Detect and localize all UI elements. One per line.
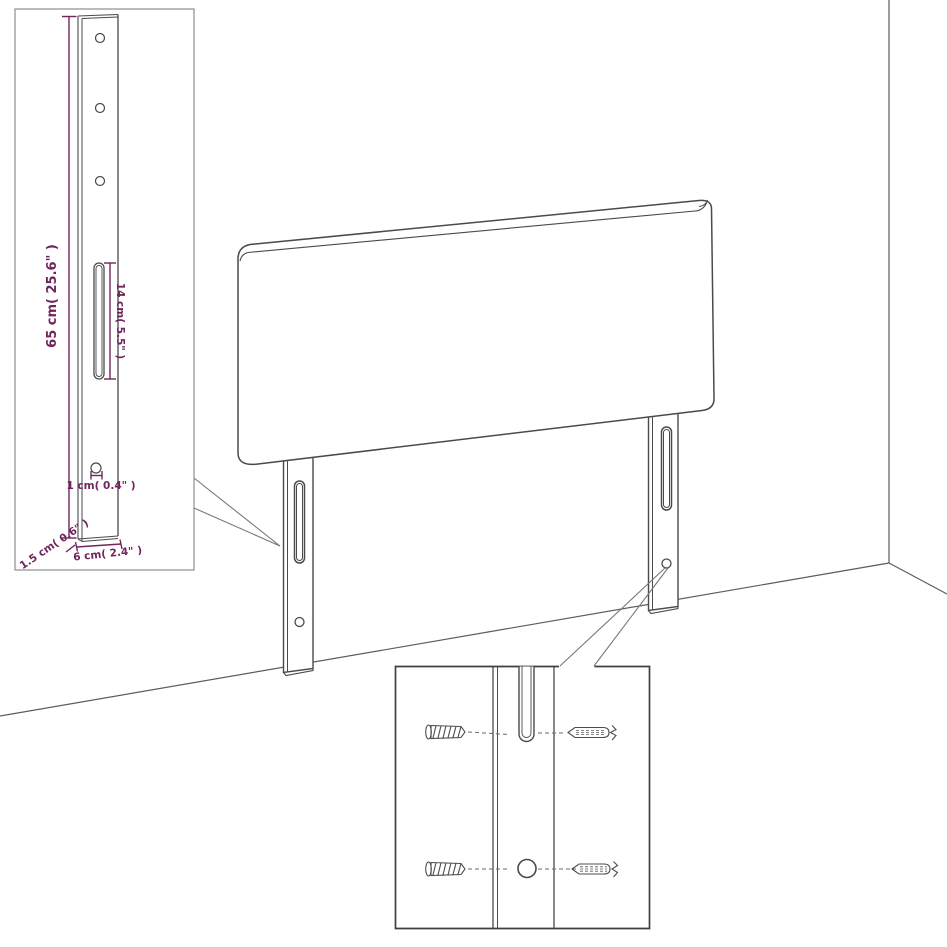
- left-inset-callout: [194, 478, 280, 546]
- leg-detail-hole-2: [96, 104, 105, 113]
- leg-detail-hole-1: [96, 34, 105, 43]
- headboard-outline: [238, 200, 714, 464]
- leg-detail-slot: [94, 263, 104, 379]
- headboard-panel: [238, 200, 714, 464]
- left-leg: [284, 443, 314, 676]
- callout-line-right: [594, 568, 668, 666]
- headboard-assembly-diagram: 65 cm( 25.6" ) 14 cm( 5.5" ) 1 cm( 0.4" …: [0, 0, 947, 947]
- dim-label-slot-length: 14 cm( 5.5" ): [114, 283, 126, 359]
- right-leg: [649, 398, 679, 614]
- dim-label-hole-diameter: 1 cm( 0.4" ): [66, 480, 135, 492]
- product-diagram: 65 cm( 25.6" ) 14 cm( 5.5" ) 1 cm( 0.4" …: [0, 0, 947, 947]
- leg-detail-inset: 65 cm( 25.6" ) 14 cm( 5.5" ) 1 cm( 0.4" …: [15, 9, 194, 572]
- dim-label-leg-height: 65 cm( 25.6" ): [45, 244, 60, 348]
- floor-line-right: [889, 563, 947, 594]
- leg-detail-small-hole: [91, 463, 101, 473]
- callout-line-lower: [194, 508, 280, 546]
- inset-slot: [519, 667, 534, 742]
- screw-detail-inset: [396, 667, 650, 929]
- left-leg-hole: [295, 618, 304, 627]
- leg-detail-hole-3: [96, 177, 105, 186]
- right-leg-hole: [662, 559, 671, 568]
- inset-hole: [518, 860, 536, 878]
- callout-line-upper: [194, 478, 280, 546]
